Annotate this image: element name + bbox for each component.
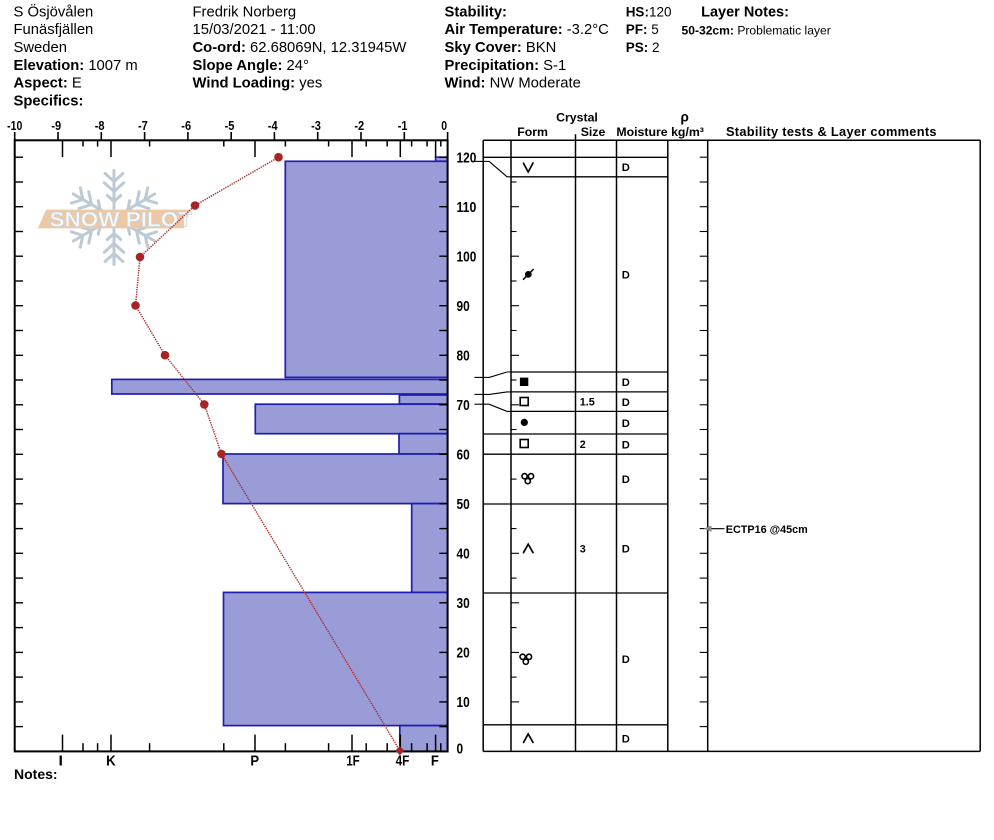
svg-text:Specifics:: Specifics:: [14, 93, 84, 109]
svg-text:50-32cm: Problematic layer: 50-32cm: Problematic layer: [682, 24, 831, 38]
svg-text:D: D: [622, 544, 630, 556]
svg-text:-5: -5: [225, 119, 235, 133]
svg-text:Elevation: 1007 m: Elevation: 1007 m: [14, 58, 138, 74]
svg-text:-7: -7: [138, 119, 148, 133]
svg-text:D: D: [622, 654, 630, 666]
svg-text:-9: -9: [51, 119, 61, 133]
svg-text:Moisture: Moisture: [616, 125, 667, 139]
svg-text:70: 70: [457, 398, 470, 414]
svg-text:-8: -8: [95, 119, 105, 133]
svg-text:D: D: [622, 270, 630, 282]
svg-text:Size: Size: [581, 125, 606, 139]
svg-text:50: 50: [457, 497, 470, 513]
svg-text:ECTP16 @45cm: ECTP16 @45cm: [726, 524, 808, 536]
svg-text:Funäsfjällen: Funäsfjällen: [14, 22, 94, 38]
svg-text:F: F: [431, 753, 439, 769]
svg-text:4F: 4F: [396, 753, 410, 769]
svg-text:PS: 2: PS: 2: [626, 40, 660, 55]
svg-text:Crystal: Crystal: [556, 111, 598, 125]
svg-text:D: D: [622, 418, 630, 430]
svg-text:120: 120: [457, 151, 477, 167]
svg-text:-4: -4: [268, 119, 278, 133]
svg-text:D: D: [622, 377, 630, 389]
svg-text:I: I: [59, 753, 63, 769]
svg-text:Wind Loading: yes: Wind Loading: yes: [193, 76, 323, 92]
svg-text:2: 2: [580, 439, 586, 451]
svg-text:-2: -2: [354, 119, 364, 133]
svg-text:90: 90: [457, 299, 470, 315]
svg-text:-3: -3: [311, 119, 321, 133]
svg-text:1F: 1F: [346, 753, 360, 769]
svg-text:HS:120: HS:120: [626, 4, 672, 19]
svg-text:Slope Angle: 24°: Slope Angle: 24°: [193, 58, 309, 74]
svg-text:D: D: [622, 397, 630, 409]
svg-text:Sweden: Sweden: [14, 40, 67, 56]
svg-text:100: 100: [457, 250, 477, 266]
svg-text:-10: -10: [7, 119, 22, 133]
svg-text:D: D: [622, 162, 630, 174]
svg-text:Layer Notes:: Layer Notes:: [701, 4, 789, 20]
svg-text:80: 80: [457, 349, 470, 365]
svg-text:Form: Form: [517, 125, 548, 139]
svg-text:S Ösjövålen: S Ösjövålen: [14, 2, 94, 20]
svg-text:Precipitation: S-1: Precipitation: S-1: [445, 58, 567, 74]
svg-text:15/03/2021 - 11:00: 15/03/2021 - 11:00: [193, 22, 316, 38]
svg-text:30: 30: [457, 596, 470, 612]
svg-text:D: D: [622, 474, 630, 486]
svg-text:60: 60: [457, 448, 470, 464]
svg-text:D: D: [622, 733, 630, 745]
svg-text:0: 0: [441, 119, 447, 133]
svg-text:Stability tests & Layer commen: Stability tests & Layer comments: [726, 124, 937, 139]
svg-text:Co-ord: 62.68069N, 12.31945W: Co-ord: 62.68069N, 12.31945W: [193, 40, 407, 56]
svg-text:Air Temperature: -3.2°C: Air Temperature: -3.2°C: [445, 22, 610, 38]
svg-text:P: P: [250, 753, 259, 769]
svg-text:1.5: 1.5: [580, 397, 595, 409]
svg-text:0: 0: [457, 742, 464, 758]
svg-text:Wind: NW Moderate: Wind: NW Moderate: [445, 76, 581, 92]
svg-text:PF: 5: PF: 5: [626, 22, 659, 37]
svg-text:ρ: ρ: [681, 110, 689, 125]
svg-text:Aspect: E: Aspect: E: [14, 76, 82, 92]
svg-text:Sky Cover: BKN: Sky Cover: BKN: [445, 40, 557, 56]
svg-text:-1: -1: [398, 119, 408, 133]
svg-text:-6: -6: [181, 119, 191, 133]
svg-text:10: 10: [457, 695, 470, 711]
svg-text:Fredrik Norberg: Fredrik Norberg: [193, 4, 297, 20]
svg-text:Notes:: Notes:: [14, 766, 58, 782]
svg-text:K: K: [106, 753, 116, 769]
svg-text:3: 3: [580, 544, 586, 556]
svg-text:D: D: [622, 439, 630, 451]
svg-text:20: 20: [457, 646, 470, 662]
svg-text:110: 110: [457, 200, 477, 216]
svg-text:kg/m³: kg/m³: [671, 125, 704, 139]
svg-text:Stability:: Stability:: [445, 4, 507, 20]
svg-text:40: 40: [457, 547, 470, 563]
